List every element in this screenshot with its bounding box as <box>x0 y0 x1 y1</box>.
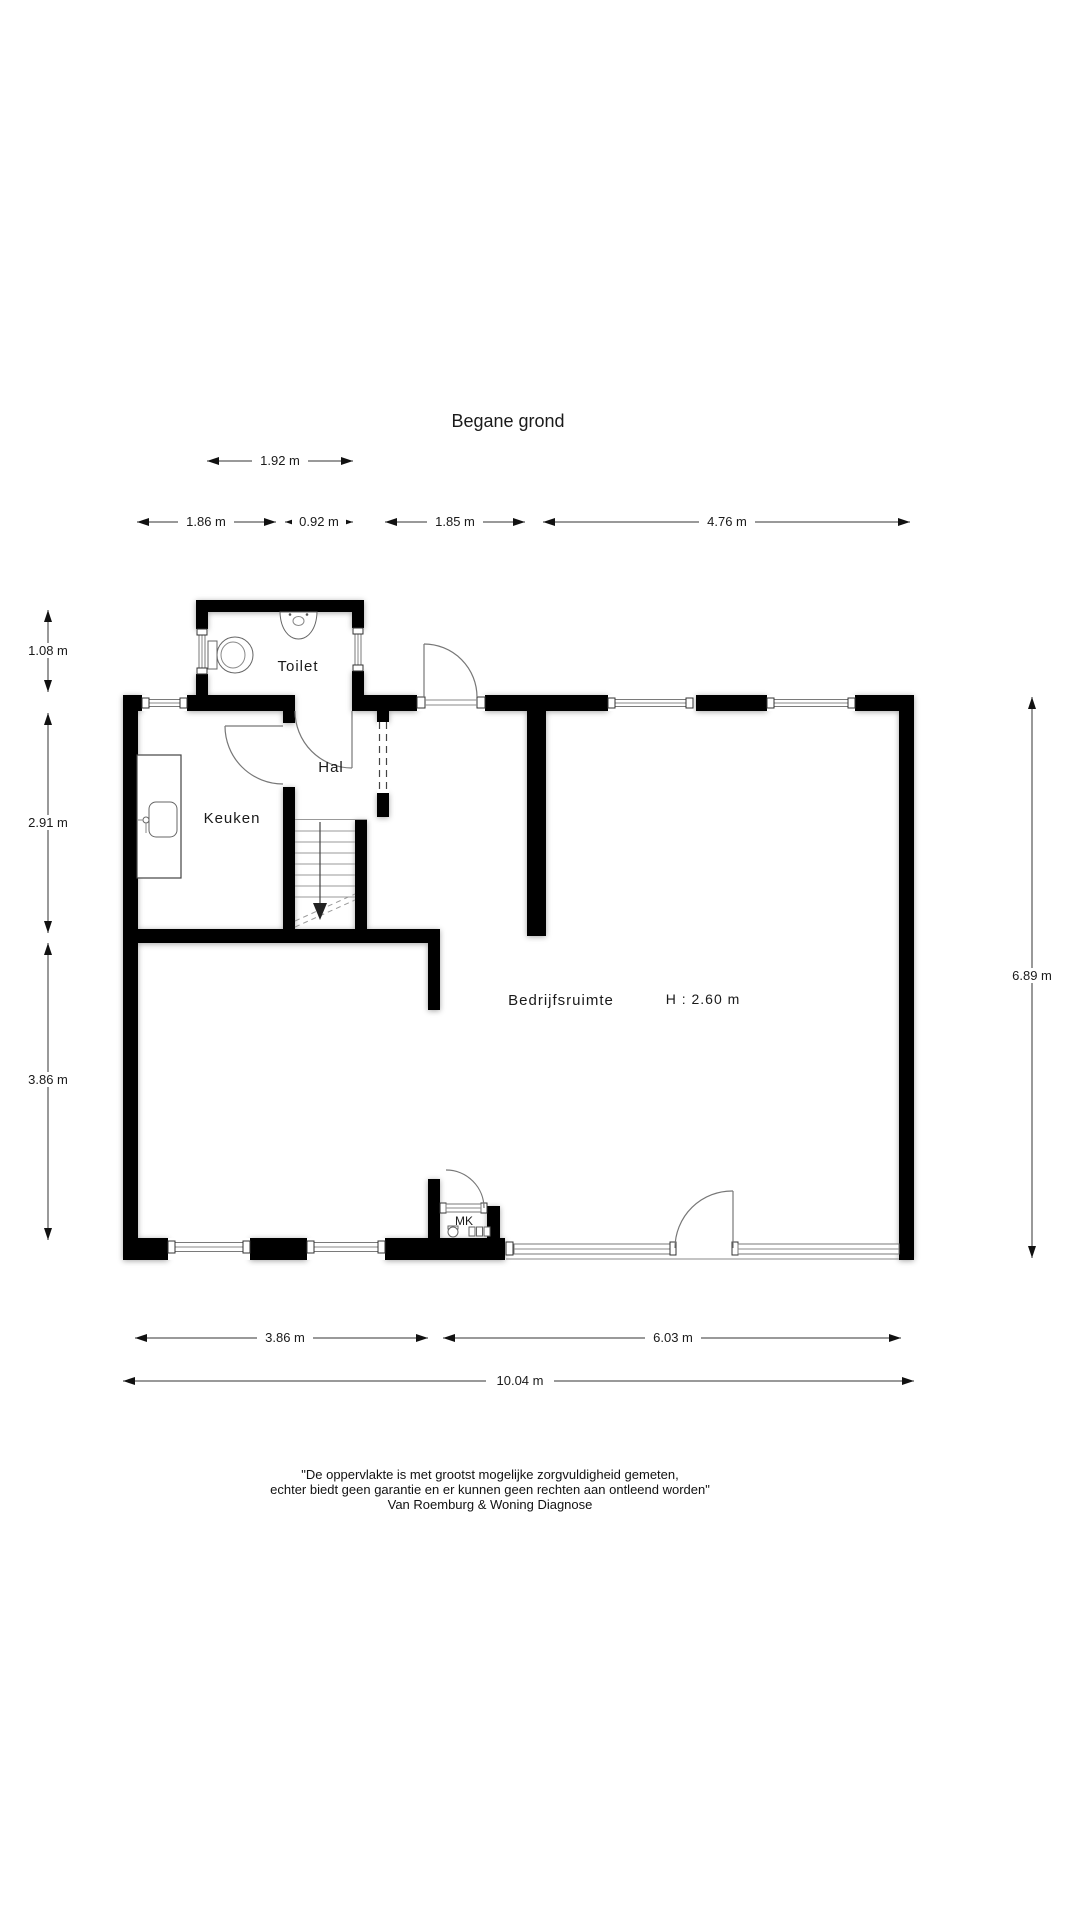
mk-door <box>440 1170 487 1213</box>
dim-toilet-width: 1.92 m <box>207 453 353 468</box>
dim-hal-width: 0.92 m <box>285 514 353 529</box>
svg-text:6.03 m: 6.03 m <box>653 1330 693 1345</box>
storefront-window <box>506 1242 899 1259</box>
disclaimer-line3: Van Roemburg & Woning Diagnose <box>388 1497 593 1512</box>
room-label-toilet: Toilet <box>277 658 318 675</box>
hal-opening <box>377 722 389 793</box>
dim-bottom-right-width: 6.03 m <box>443 1330 901 1345</box>
floorplan-canvas: Begane grond <box>0 0 1080 1920</box>
wall-middle <box>527 711 546 936</box>
svg-text:10.04 m: 10.04 m <box>497 1373 544 1388</box>
door-swing-arc <box>675 1191 733 1248</box>
dim-total-depth: 6.89 m <box>1004 697 1060 1258</box>
room-label-hal: Hal <box>318 759 344 776</box>
door-swing-arc <box>424 644 477 697</box>
svg-text:4.76 m: 4.76 m <box>707 514 747 529</box>
disclaimer: "De oppervlakte is met grootst mogelijke… <box>270 1467 710 1512</box>
svg-text:3.86 m: 3.86 m <box>265 1330 305 1345</box>
dim-right-width: 4.76 m <box>543 514 910 529</box>
wash-basin-icon <box>280 612 317 639</box>
gas-meter-icon <box>448 1227 458 1237</box>
dim-bottom-left-width: 3.86 m <box>135 1330 428 1345</box>
wall-mk-left <box>428 1179 440 1260</box>
toilet-bowl-icon <box>208 637 253 673</box>
svg-text:1.86 m: 1.86 m <box>186 514 226 529</box>
svg-text:0.92 m: 0.92 m <box>299 514 339 529</box>
svg-text:3.86 m: 3.86 m <box>28 1072 68 1087</box>
ceiling-height-label: H : 2.60 m <box>666 991 741 1007</box>
bedrijfsruimte-door <box>675 1191 733 1248</box>
window-toilet-left <box>196 629 208 674</box>
disclaimer-line1: "De oppervlakte is met grootst mogelijke… <box>301 1467 678 1482</box>
kitchen-sink <box>149 802 177 837</box>
window-top-right <box>767 695 855 711</box>
door-swing-arc <box>225 726 283 784</box>
wall-stairs <box>355 820 367 943</box>
wall-left <box>123 695 138 1260</box>
stair-direction-arrow <box>313 822 327 920</box>
room-label-bedrijfsruimte: Bedrijfsruimte <box>508 992 614 1009</box>
dim-mid-width: 1.85 m <box>385 514 525 529</box>
floorplan-page: Begane grond <box>0 0 1080 1920</box>
room-label-keuken: Keuken <box>204 810 261 827</box>
toilet-top-wall <box>196 600 364 612</box>
wall-right <box>899 695 914 1260</box>
window-top-left <box>142 695 187 711</box>
dim-toilet-depth: 1.08 m <box>20 610 76 692</box>
page-title: Begane grond <box>451 411 564 431</box>
keuken-door <box>225 726 283 784</box>
dim-keuken-depth: 2.91 m <box>20 713 76 933</box>
dim-keuken-width: 1.86 m <box>137 514 276 529</box>
room-label-mk: MK <box>455 1214 473 1228</box>
wall-keuken-bedrijfsruimte <box>123 929 440 943</box>
svg-text:1.08 m: 1.08 m <box>28 643 68 658</box>
dim-total-width: 10.04 m <box>123 1373 914 1388</box>
window-bottom-left <box>168 1238 250 1260</box>
electric-meter-icon <box>469 1227 475 1236</box>
window-top-mid <box>608 695 693 711</box>
disclaimer-line2: echter biedt geen garantie en er kunnen … <box>270 1482 710 1497</box>
svg-text:6.89 m: 6.89 m <box>1012 968 1052 983</box>
window-toilet-right <box>352 628 364 671</box>
svg-text:1.85 m: 1.85 m <box>435 514 475 529</box>
front-door <box>417 644 485 711</box>
door-swing-arc <box>446 1170 484 1208</box>
kitchen-counter <box>137 755 181 878</box>
faucet-icon <box>143 817 149 823</box>
svg-text:2.91 m: 2.91 m <box>28 815 68 830</box>
wall-keuken-hal <box>283 787 295 943</box>
window-bottom-mid <box>307 1238 385 1260</box>
dim-lower-depth: 3.86 m <box>20 943 76 1240</box>
svg-text:1.92 m: 1.92 m <box>260 453 300 468</box>
